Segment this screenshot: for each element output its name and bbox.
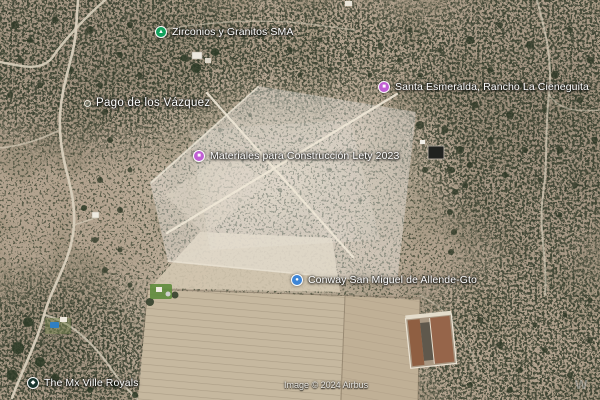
outdoors-pin-icon[interactable]: ▲ <box>155 26 167 38</box>
map-marker-conway[interactable]: ● Conway San Miguel de Allende-Gto <box>291 274 477 286</box>
lodging-pin-icon[interactable]: ■ <box>378 81 390 93</box>
marker-label[interactable]: Materiales para Construcción Lety 2023 <box>210 150 399 162</box>
satellite-map[interactable]: ▲ Zirconios y Granitos SMA Pago de los V… <box>0 0 600 400</box>
map-marker-materiales[interactable]: ■ Materiales para Construcción Lety 2023 <box>193 150 399 162</box>
shop-icon: ■ <box>197 153 201 159</box>
map-marker-santa-esmeralda[interactable]: ■ Santa Esmeralda, Rancho La Cieneguita <box>378 81 589 93</box>
marker-label[interactable]: Conway San Miguel de Allende-Gto <box>308 274 477 286</box>
store-pin-icon[interactable]: ■ <box>193 150 205 162</box>
locality-label-pago[interactable]: Pago de los Vázquez <box>84 97 210 109</box>
locality-name[interactable]: Pago de los Vázquez <box>96 97 210 109</box>
diamond-icon: ◆ <box>31 380 36 386</box>
marker-label[interactable]: Santa Esmeralda, Rancho La Cieneguita <box>395 81 589 93</box>
lodging-dark-pin-icon[interactable]: ◆ <box>27 377 39 389</box>
locality-dot-icon[interactable] <box>84 100 91 107</box>
tree-icon: ▲ <box>158 29 164 35</box>
map-marker-mx-ville[interactable]: ◆ The Mx Ville Royals <box>27 377 139 389</box>
marker-label[interactable]: The Mx Ville Royals <box>44 377 139 389</box>
bed-icon: ■ <box>382 84 386 90</box>
dot-icon: ● <box>295 277 299 283</box>
map-marker-outdoors[interactable]: ▲ Zirconios y Granitos SMA <box>155 26 293 38</box>
watermark-partial: W <box>575 377 587 392</box>
imagery-attribution: Image © 2024 Airbus <box>284 380 368 390</box>
place-pin-icon[interactable]: ● <box>291 274 303 286</box>
satellite-imagery <box>0 0 600 400</box>
marker-label[interactable]: Zirconios y Granitos SMA <box>172 26 293 38</box>
